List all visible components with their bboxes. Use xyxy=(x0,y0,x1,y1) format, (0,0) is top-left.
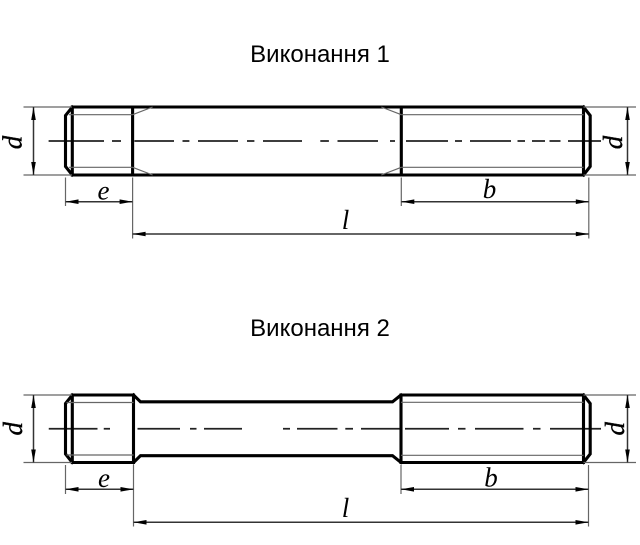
svg-text:d: d xyxy=(0,422,28,436)
svg-text:Виконання 2: Виконання 2 xyxy=(250,315,390,342)
svg-text:l: l xyxy=(342,493,350,523)
svg-text:d: d xyxy=(0,135,28,149)
svg-text:b: b xyxy=(484,463,498,493)
svg-text:b: b xyxy=(483,174,497,204)
svg-text:e: e xyxy=(98,463,110,493)
svg-text:e: e xyxy=(98,176,110,206)
svg-text:Виконання 1: Виконання 1 xyxy=(250,41,390,68)
svg-text:d: d xyxy=(598,135,628,149)
svg-text:d: d xyxy=(600,422,630,436)
svg-text:l: l xyxy=(342,205,350,235)
